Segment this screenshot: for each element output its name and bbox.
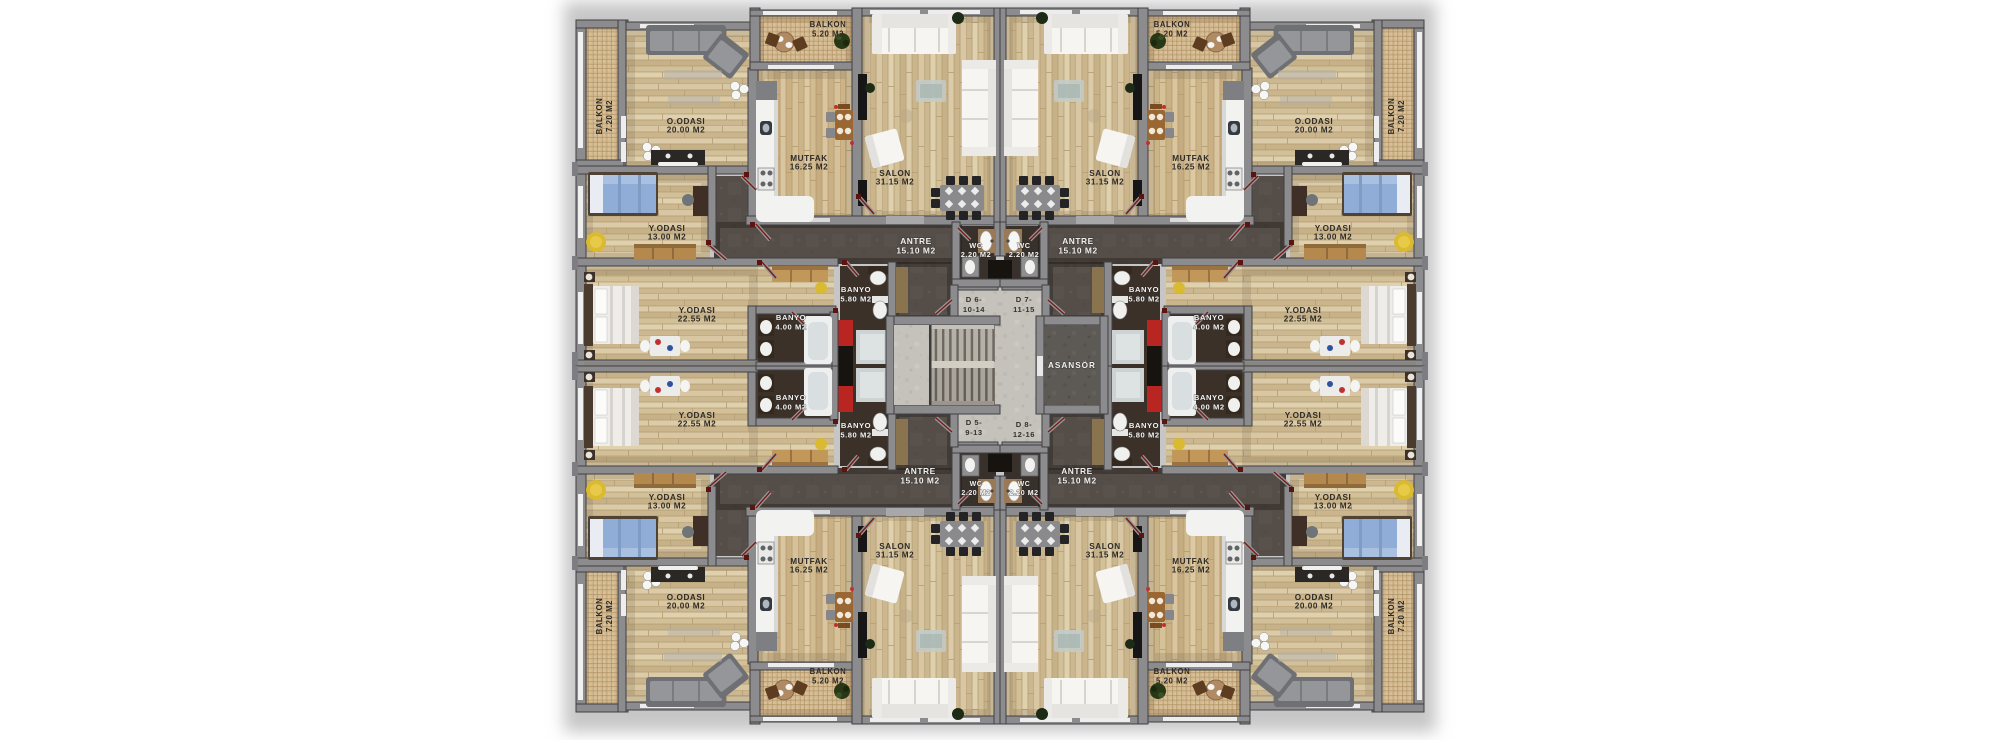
svg-text:5.20 M2: 5.20 M2 bbox=[1156, 29, 1188, 38]
svg-text:BANYO: BANYO bbox=[1129, 285, 1159, 294]
svg-text:16.25 M2: 16.25 M2 bbox=[1172, 162, 1211, 171]
svg-text:31.15 M2: 31.15 M2 bbox=[876, 177, 915, 186]
svg-text:7.20 M2: 7.20 M2 bbox=[605, 600, 614, 632]
svg-text:2.20 M2: 2.20 M2 bbox=[961, 250, 992, 259]
svg-text:5.20 M2: 5.20 M2 bbox=[812, 29, 844, 38]
svg-text:5.80 M2: 5.80 M2 bbox=[1128, 294, 1159, 303]
svg-text:WC: WC bbox=[1017, 241, 1031, 250]
svg-text:WC: WC bbox=[1018, 481, 1031, 488]
svg-text:16.25 M2: 16.25 M2 bbox=[790, 565, 829, 574]
svg-text:5.80 M2: 5.80 M2 bbox=[840, 294, 871, 303]
svg-text:13.00 M2: 13.00 M2 bbox=[648, 232, 687, 241]
svg-text:ASANSÖR: ASANSÖR bbox=[1048, 360, 1096, 370]
svg-text:BALKON: BALKON bbox=[595, 598, 604, 635]
svg-text:16.25 M2: 16.25 M2 bbox=[790, 162, 829, 171]
svg-text:BALKON: BALKON bbox=[1154, 667, 1191, 676]
svg-text:D 5-: D 5- bbox=[966, 418, 983, 427]
svg-text:BALKON: BALKON bbox=[1154, 20, 1191, 29]
svg-text:22.55 M2: 22.55 M2 bbox=[678, 419, 717, 428]
svg-text:15.10 M2: 15.10 M2 bbox=[900, 475, 939, 485]
svg-text:10-14: 10-14 bbox=[963, 305, 985, 314]
svg-text:BALKON: BALKON bbox=[1387, 98, 1396, 135]
svg-text:4.00 M2: 4.00 M2 bbox=[1193, 402, 1224, 411]
svg-text:4.00 M2: 4.00 M2 bbox=[775, 402, 806, 411]
svg-text:BALKON: BALKON bbox=[810, 20, 847, 29]
svg-text:5.20 M2: 5.20 M2 bbox=[812, 676, 844, 685]
svg-text:7.20 M2: 7.20 M2 bbox=[605, 100, 614, 132]
svg-text:BANYO: BANYO bbox=[841, 421, 871, 430]
svg-text:11-15: 11-15 bbox=[1013, 305, 1035, 314]
svg-text:15.10 M2: 15.10 M2 bbox=[896, 245, 935, 255]
svg-text:12-16: 12-16 bbox=[1013, 430, 1035, 439]
svg-text:7.20 M2: 7.20 M2 bbox=[1397, 600, 1406, 632]
svg-text:2.20 M2: 2.20 M2 bbox=[1009, 250, 1040, 259]
svg-text:2.20 M2: 2.20 M2 bbox=[961, 490, 990, 497]
svg-text:31.15 M2: 31.15 M2 bbox=[1086, 550, 1125, 559]
svg-text:31.15 M2: 31.15 M2 bbox=[1086, 177, 1125, 186]
svg-text:WC: WC bbox=[969, 241, 983, 250]
svg-text:BANYO: BANYO bbox=[1194, 393, 1224, 402]
svg-text:15.10 M2: 15.10 M2 bbox=[1057, 475, 1096, 485]
svg-text:BANYO: BANYO bbox=[776, 313, 806, 322]
svg-text:15.10 M2: 15.10 M2 bbox=[1058, 245, 1097, 255]
svg-text:16.25 M2: 16.25 M2 bbox=[1172, 565, 1211, 574]
svg-text:BALKON: BALKON bbox=[1387, 598, 1396, 635]
svg-text:22.55 M2: 22.55 M2 bbox=[678, 314, 717, 323]
svg-text:7.20 M2: 7.20 M2 bbox=[1397, 100, 1406, 132]
svg-text:BANYO: BANYO bbox=[776, 393, 806, 402]
svg-text:20.00 M2: 20.00 M2 bbox=[667, 125, 706, 134]
svg-text:9-13: 9-13 bbox=[965, 428, 982, 437]
svg-text:D 7-: D 7- bbox=[1016, 295, 1033, 304]
svg-text:D 6-: D 6- bbox=[966, 295, 983, 304]
svg-text:5.80 M2: 5.80 M2 bbox=[840, 430, 871, 439]
svg-text:5.80 M2: 5.80 M2 bbox=[1128, 430, 1159, 439]
svg-text:4.00 M2: 4.00 M2 bbox=[1193, 322, 1224, 331]
svg-text:D 8-: D 8- bbox=[1016, 420, 1033, 429]
svg-text:20.00 M2: 20.00 M2 bbox=[667, 601, 706, 610]
svg-text:BALKON: BALKON bbox=[810, 667, 847, 676]
svg-text:13.00 M2: 13.00 M2 bbox=[648, 501, 687, 510]
svg-text:4.00 M2: 4.00 M2 bbox=[775, 322, 806, 331]
svg-text:20.00 M2: 20.00 M2 bbox=[1295, 125, 1334, 134]
svg-text:5.20 M2: 5.20 M2 bbox=[1156, 676, 1188, 685]
svg-text:2.20 M2: 2.20 M2 bbox=[1009, 490, 1038, 497]
svg-text:20.00 M2: 20.00 M2 bbox=[1295, 601, 1334, 610]
svg-text:WC: WC bbox=[970, 481, 983, 488]
svg-text:13.00 M2: 13.00 M2 bbox=[1314, 232, 1353, 241]
svg-text:22.55 M2: 22.55 M2 bbox=[1284, 314, 1323, 323]
svg-text:BANYO: BANYO bbox=[1129, 421, 1159, 430]
svg-text:BANYO: BANYO bbox=[1194, 313, 1224, 322]
svg-text:BALKON: BALKON bbox=[595, 98, 604, 135]
svg-text:31.15 M2: 31.15 M2 bbox=[876, 550, 915, 559]
svg-text:BANYO: BANYO bbox=[841, 285, 871, 294]
svg-text:22.55 M2: 22.55 M2 bbox=[1284, 419, 1323, 428]
svg-text:13.00 M2: 13.00 M2 bbox=[1314, 501, 1353, 510]
